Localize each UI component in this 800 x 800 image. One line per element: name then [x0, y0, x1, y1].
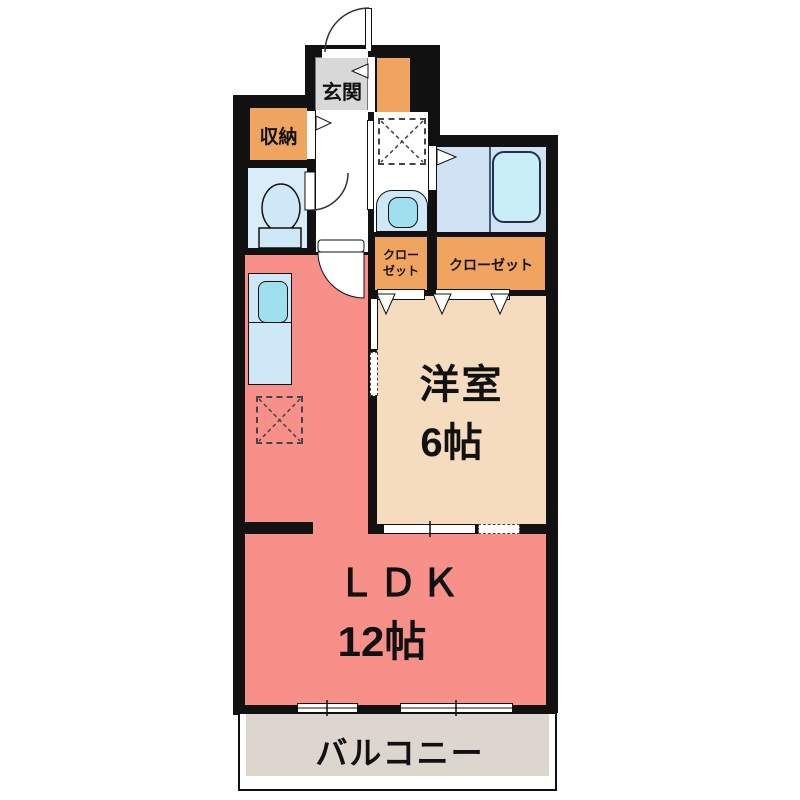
washbasin-bowl — [388, 197, 418, 228]
floor-plan: バルコニー — [0, 0, 800, 800]
closet-large-folding-door — [435, 289, 510, 300]
washing-machine-space — [378, 118, 426, 165]
balcony-window-right — [400, 703, 513, 713]
western-room-size: 6帖 — [367, 410, 536, 468]
bathtub-zone-divider — [489, 147, 491, 232]
entrance-door-leaf — [365, 8, 372, 52]
western-room-sliding-door — [383, 524, 476, 534]
hallway-floor — [316, 110, 368, 252]
entrance-label: 玄関 — [313, 76, 371, 105]
western-room-label: 洋室 — [377, 352, 546, 410]
storage-label: 収納 — [250, 122, 307, 149]
western-room-door-pocket — [478, 524, 520, 534]
ldk-size: 12帖 — [282, 608, 482, 669]
closet-large-label: クローゼット — [437, 255, 545, 275]
closet-small-label-line1: クロー — [375, 246, 427, 263]
closet-small-folding-door — [377, 289, 425, 300]
storage-door — [307, 110, 316, 160]
western-room-side-sliding-door — [370, 298, 378, 350]
toilet-room — [248, 168, 307, 248]
kitchen-sink-icon — [258, 281, 288, 323]
bathtub-icon — [492, 151, 541, 223]
kitchen-stub-wall — [245, 522, 313, 534]
balcony-label: バルコニー — [300, 728, 500, 774]
balcony-window-left — [297, 703, 358, 713]
shoe-cabinet — [377, 58, 410, 112]
entrance-threshold — [322, 49, 368, 58]
bathroom-door — [428, 145, 437, 191]
closet-small-label-line2: ゼット — [375, 262, 427, 279]
washroom-sliding-door — [367, 120, 374, 210]
refrigerator-space — [256, 396, 303, 444]
ldk-label: ＬＤＫ — [300, 552, 500, 607]
